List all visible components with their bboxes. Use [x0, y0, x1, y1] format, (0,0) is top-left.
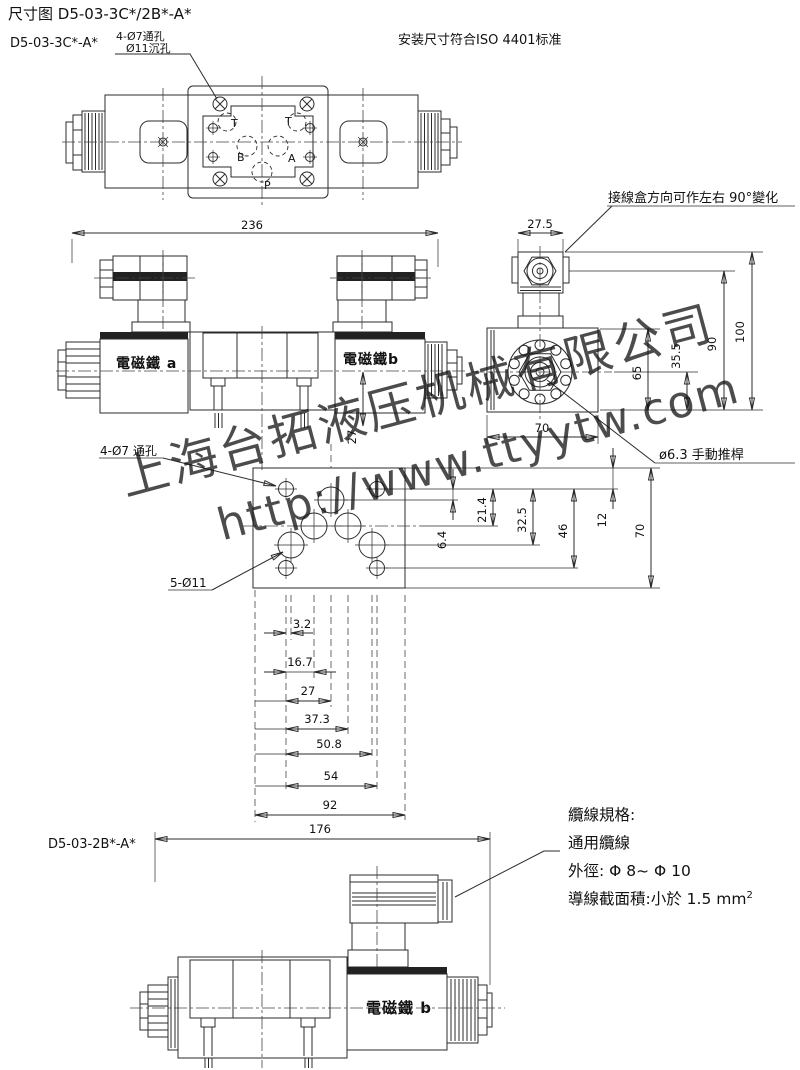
iso-standard-note: 安装尺寸符合ISO 4401标准 — [398, 32, 562, 48]
port-label-p: P — [264, 179, 271, 192]
front-left-nut — [58, 342, 100, 398]
plan-gauge-ports — [206, 121, 317, 164]
cable-spec: 纜線規格: 通用纜線 外徑: Φ 8~ Φ 10 導線截面積:小於 1.5 mm… — [568, 805, 753, 908]
pattern-large-holes-callout: 5-Ø11 — [170, 576, 207, 590]
single-right-nut — [447, 977, 492, 1043]
single-body — [178, 950, 347, 1068]
plan-view: T T B A P — [62, 76, 462, 206]
port-label-a: A — [288, 152, 296, 165]
dim-p27: 27 — [301, 684, 316, 698]
drawing-page: 尺寸图 D5-03-3C*/2B*-A* D5-03-3C*-A* 安装尺寸符合… — [0, 0, 800, 1070]
plan-left-nut — [66, 111, 105, 172]
front-right-connector — [330, 250, 432, 334]
cable-spec-leader — [455, 851, 560, 897]
page-title: 尺寸图 D5-03-3C*/2B*-A* — [8, 5, 192, 23]
dim-p50-8: 50.8 — [316, 737, 342, 751]
dim-p12: 12 — [595, 513, 609, 528]
port-label-b: B — [237, 151, 245, 164]
mount-holes-callout-line2: Ø11沉孔 — [126, 42, 171, 55]
single-connector — [348, 866, 452, 970]
cable-spec-line1: 纜線規格: — [568, 805, 635, 824]
dim-p3-2: 3.2 — [293, 617, 311, 631]
cable-spec-line4: 導線截面積:小於 1.5 mm2 — [568, 890, 753, 908]
junction-box-callout: 接線盒方向可作左右 90°變化 — [608, 190, 778, 206]
dim-p37-3: 37.3 — [304, 712, 330, 726]
dim-p92: 92 — [323, 798, 338, 812]
model-label-2b: D5-03-2B*-A* — [48, 837, 136, 852]
dim-h100: 100 — [733, 321, 747, 343]
mount-holes-leader-line — [115, 54, 217, 99]
dim-overall-front: 236 — [241, 218, 263, 232]
solenoid-b-label: 電磁鐵b — [343, 351, 399, 368]
dim-p16-7: 16.7 — [287, 655, 313, 669]
dim-overall-single: 176 — [309, 822, 331, 836]
single-left-nut — [140, 977, 178, 1050]
port-label-t2: T — [284, 115, 292, 128]
cable-spec-line3: 外徑: Φ 8~ Φ 10 — [568, 862, 691, 880]
header: 尺寸图 D5-03-3C*/2B*-A* D5-03-3C*-A* 安装尺寸符合… — [8, 5, 562, 99]
solenoid-a-label: 電磁鐵 a — [116, 355, 177, 372]
dim-p32-5: 32.5 — [515, 507, 529, 533]
dim-p46: 46 — [556, 524, 570, 539]
single-solenoid-view: D5-03-2B*-A* 176 電磁鐵 b — [48, 822, 560, 1068]
plan-bolt-holes — [213, 97, 314, 186]
plan-right-nut — [418, 111, 457, 172]
front-left-connector — [94, 250, 196, 334]
dim-p54: 54 — [324, 769, 339, 783]
cable-spec-line2: 通用纜線 — [568, 833, 630, 852]
port-label-t1: T — [230, 117, 238, 130]
dim-conn-width: 27.5 — [527, 217, 553, 231]
model-label-3c: D5-03-3C*-A* — [10, 36, 98, 51]
side-connector — [512, 252, 569, 328]
dim-p21-4: 21.4 — [475, 497, 489, 523]
pattern-bottom-dims: 3.2 16.7 27 37.3 50.8 54 92 — [255, 590, 405, 822]
dim-p6-4: 6.4 — [435, 531, 449, 549]
manual-pin-callout: ø6.3 手動推桿 — [659, 448, 744, 463]
dim-p70: 70 — [633, 524, 647, 539]
valve-dimension-drawing: 尺寸图 D5-03-3C*/2B*-A* D5-03-3C*-A* 安装尺寸符合… — [0, 0, 800, 1070]
